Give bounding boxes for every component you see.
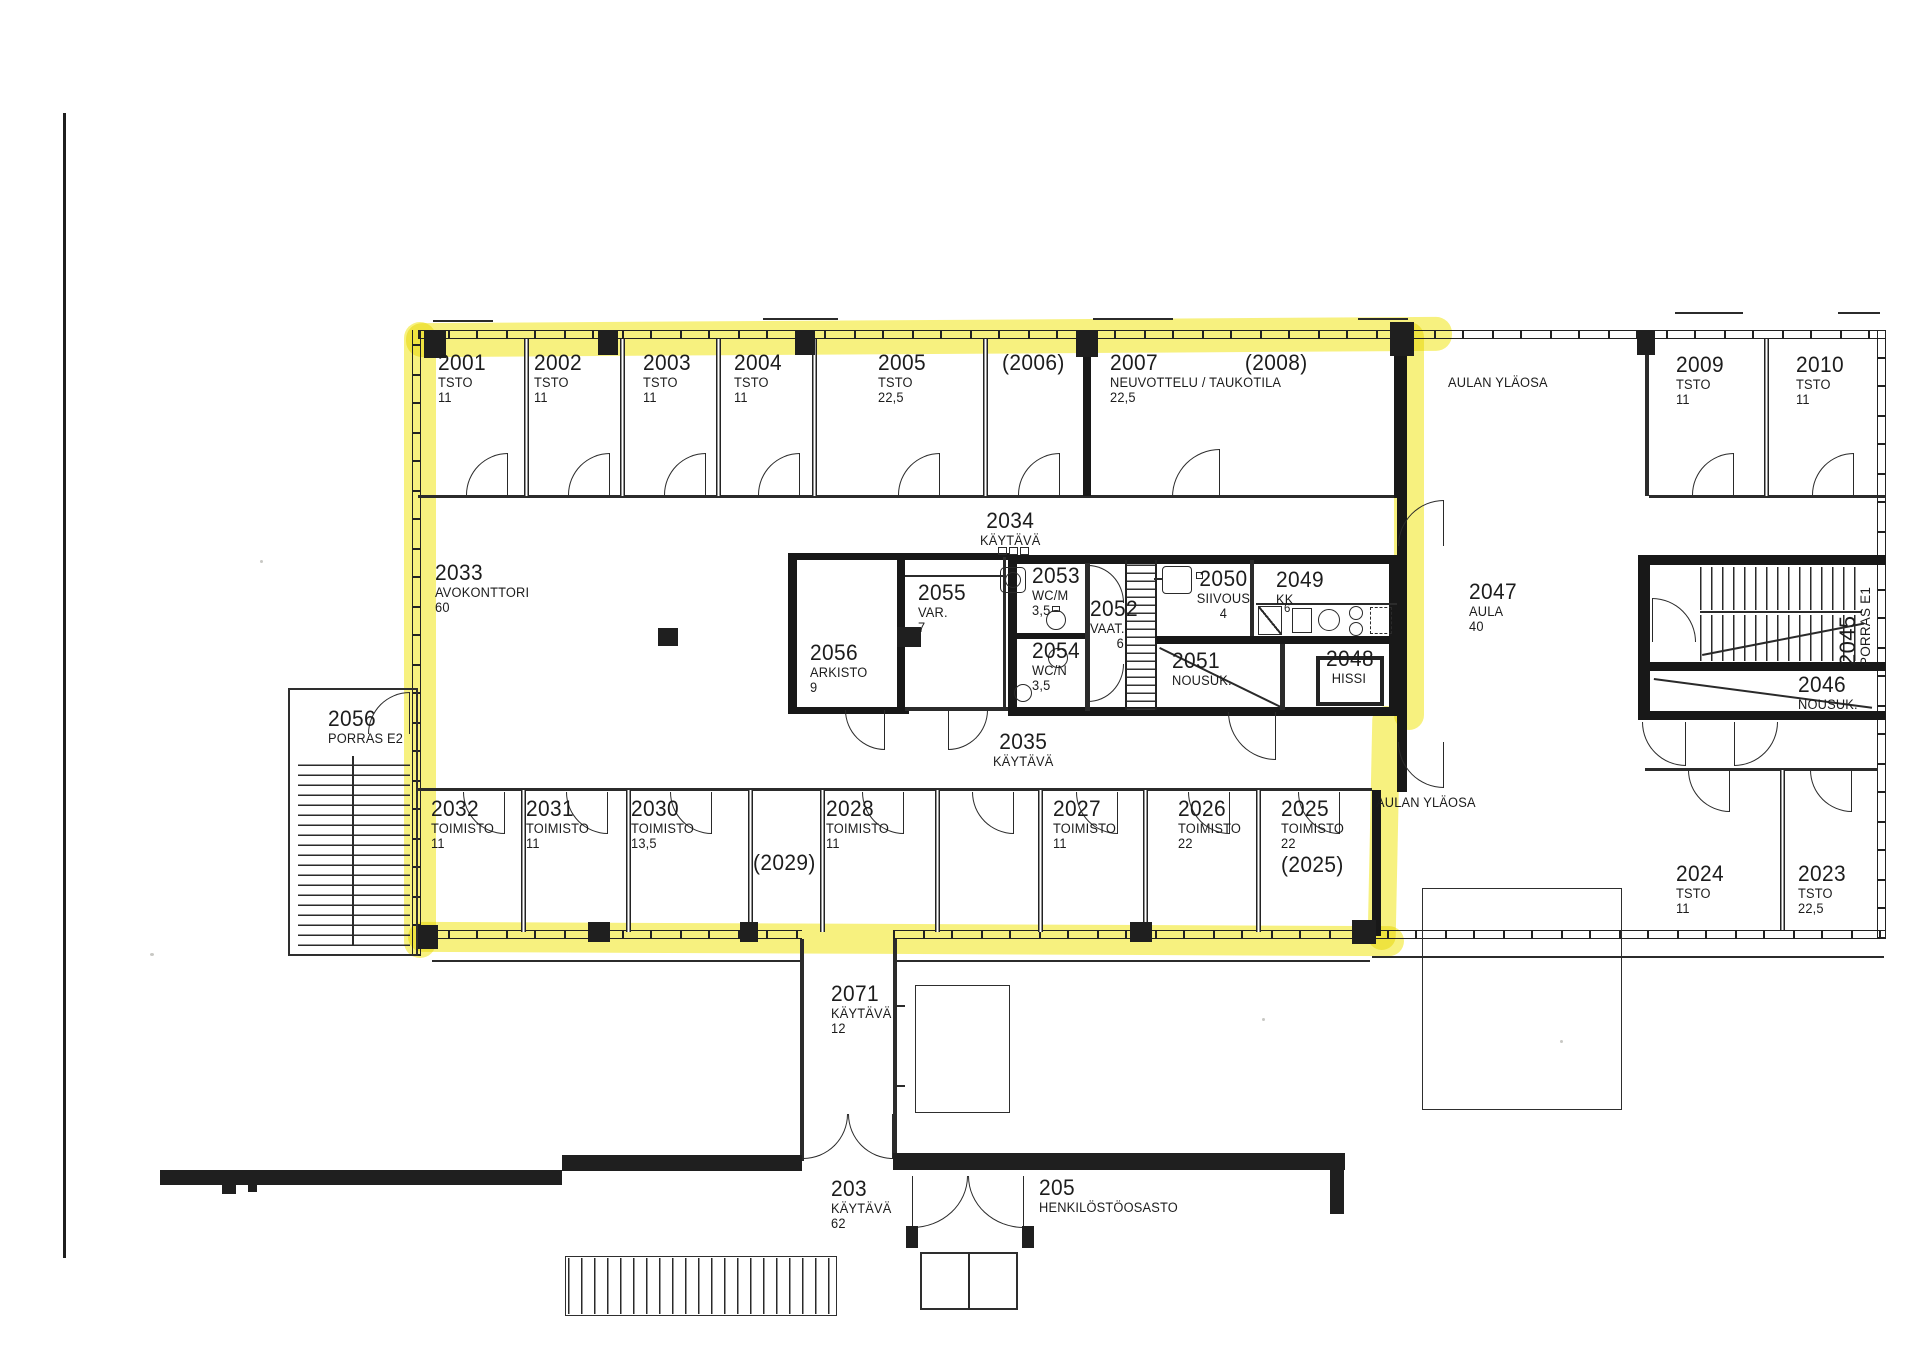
sill-tick bbox=[1358, 318, 1408, 320]
window-wall-top bbox=[418, 330, 1886, 339]
door-2009 bbox=[1692, 453, 1734, 495]
room-label-2045: 2045 PORRAS E1 bbox=[1836, 587, 1873, 666]
column bbox=[658, 628, 678, 646]
highlight-bottom bbox=[408, 922, 1404, 956]
kitchen-sink-icon bbox=[1318, 609, 1340, 631]
wall bbox=[812, 339, 817, 496]
room-label-2029: (2029) bbox=[753, 850, 816, 875]
room-label-2052: 2052 VAAT. 6 bbox=[1090, 596, 1138, 652]
room-label-2003: 2003 TSTO 11 bbox=[643, 350, 691, 406]
window-wall-right bbox=[1877, 330, 1886, 939]
stair-treads-e2 bbox=[298, 756, 410, 946]
door-2046-right bbox=[1734, 722, 1778, 766]
fridge-icon bbox=[1370, 607, 1392, 634]
room-label-2048: 2048 HISSI bbox=[1326, 646, 1374, 686]
wall-thick bbox=[1155, 636, 1399, 644]
sill-tick bbox=[1093, 318, 1173, 320]
wall bbox=[935, 790, 940, 932]
door-wc-n bbox=[1088, 664, 1124, 702]
room-label-2047: 2047 AULA 40 bbox=[1469, 579, 1517, 635]
column bbox=[1352, 920, 1376, 944]
stove-ring-icon bbox=[1349, 606, 1363, 620]
swing-door-right bbox=[848, 1114, 893, 1159]
lobby-void-opening bbox=[1422, 888, 1622, 1110]
wall-lower-mid bbox=[562, 1155, 802, 1171]
room-label-2053: 2053 WC/M 3,5 bbox=[1032, 563, 1080, 619]
stove-ring-icon bbox=[1349, 622, 1363, 636]
wall bbox=[983, 339, 988, 496]
scan-speckle bbox=[260, 560, 263, 563]
room-label-2025: 2025 TOIMISTO 22 (2025) bbox=[1281, 796, 1344, 877]
wall bbox=[620, 339, 625, 496]
window-tick bbox=[897, 1085, 905, 1087]
column bbox=[1637, 330, 1655, 355]
lower-stair-treads bbox=[568, 1258, 834, 1314]
column bbox=[1076, 330, 1098, 357]
room-label-2006: (2006) bbox=[1002, 350, 1065, 375]
wall bbox=[820, 790, 825, 932]
room-label-2005: 2005 TSTO 22,5 bbox=[878, 350, 926, 406]
sill-tick bbox=[433, 320, 493, 322]
room-label-2004: 2004 TSTO 11 bbox=[734, 350, 782, 406]
wall-thick bbox=[788, 553, 797, 714]
room-label-2054: 2054 WC/N 3,5 bbox=[1032, 638, 1080, 694]
tap-icon bbox=[1154, 578, 1162, 580]
sill-tick bbox=[1838, 312, 1880, 314]
wall-lower-right bbox=[893, 1153, 1345, 1170]
room-label-2002: 2002 TSTO 11 bbox=[534, 350, 582, 406]
wall bbox=[1143, 790, 1148, 932]
column bbox=[740, 922, 758, 942]
sink-icon bbox=[1162, 566, 1192, 594]
toilet-icon bbox=[1014, 684, 1032, 702]
label-aulan-ylaosa-bottom: AULAN YLÄOSA bbox=[1376, 795, 1476, 810]
kitchen-unit-icon bbox=[1258, 606, 1282, 635]
kitchen-unit-icon bbox=[1292, 608, 1312, 633]
wall bbox=[1764, 339, 1769, 496]
corridor-2071-wall-right bbox=[893, 939, 897, 1161]
room-label-2030: 2030 TOIMISTO 13,5 bbox=[631, 796, 694, 852]
vestibule-door-right bbox=[968, 1176, 1024, 1228]
door-2023 bbox=[1810, 770, 1852, 812]
door-2003 bbox=[664, 453, 706, 495]
room-label-2056-arkisto: 2056 ARKISTO 9 bbox=[810, 640, 867, 696]
wall bbox=[1280, 644, 1285, 710]
wall-thick bbox=[1372, 790, 1381, 936]
board-rectangle bbox=[915, 985, 1010, 1113]
room-label-2071: 2071 KÄYTÄVÄ 12 bbox=[831, 981, 892, 1037]
wall-stub bbox=[222, 1185, 236, 1194]
door-var bbox=[948, 710, 988, 750]
corridor-wall-top-band bbox=[418, 495, 1400, 498]
room-label-2031: 2031 TOIMISTO 11 bbox=[526, 796, 589, 852]
room-label-205: 205 HENKILÖSTÖOSASTO bbox=[1039, 1175, 1178, 1215]
sill-tick bbox=[763, 318, 838, 320]
room-label-2055: 2055 VAR. 7 bbox=[918, 580, 966, 636]
column bbox=[795, 330, 815, 355]
room-label-2034: 2034 KÄYTÄVÄ bbox=[980, 508, 1041, 548]
terrace-line bbox=[897, 960, 1370, 962]
door-2007 bbox=[1172, 449, 1220, 497]
column bbox=[588, 922, 610, 942]
wall-stub bbox=[906, 1226, 918, 1248]
column bbox=[598, 330, 618, 355]
scan-edge-line bbox=[63, 113, 66, 1258]
room-label-2046: 2046 NOUSUK. bbox=[1798, 672, 1858, 712]
wall-thick bbox=[1638, 555, 1650, 720]
door-nousuk bbox=[1228, 712, 1276, 760]
corridor-wall-bottom-band bbox=[418, 788, 1372, 791]
door-2046-left bbox=[1642, 722, 1686, 766]
room-label-2056-porras: 2056 PORRAS E2 bbox=[328, 706, 403, 746]
column bbox=[1390, 322, 1414, 356]
vestibule-door-left bbox=[912, 1176, 968, 1228]
terrace-line bbox=[432, 960, 800, 962]
room-label-2035: 2035 KÄYTÄVÄ bbox=[993, 729, 1054, 769]
stair-rail-e2 bbox=[352, 756, 354, 946]
wall bbox=[524, 339, 529, 496]
room-label-2032: 2032 TOIMISTO 11 bbox=[431, 796, 494, 852]
wall bbox=[1038, 790, 1043, 932]
door-stair-e1 bbox=[1652, 598, 1696, 642]
wall-thick bbox=[1638, 555, 1886, 565]
scan-speckle bbox=[1262, 1018, 1265, 1021]
room-label-2027: 2027 TOIMISTO 11 bbox=[1053, 796, 1116, 852]
floor-plan-page: 2001 TSTO 11 2002 TSTO 11 2003 TSTO 11 2… bbox=[0, 0, 1920, 1358]
door-2010 bbox=[1812, 453, 1854, 495]
room-label-2007-2008: 2007 (2008) NEUVOTTELU / TAUKOTILA 22,5 bbox=[1110, 350, 1308, 406]
door-2006 bbox=[1018, 453, 1060, 495]
wall-thick bbox=[1083, 335, 1091, 496]
room-label-2023: 2023 TSTO 22,5 bbox=[1798, 861, 1846, 917]
wall-stub bbox=[1022, 1226, 1034, 1248]
room-label-2028: 2028 TOIMISTO 11 bbox=[826, 796, 889, 852]
room-label-2010: 2010 TSTO 11 bbox=[1796, 352, 1844, 408]
door-2001 bbox=[466, 453, 508, 495]
room-label-2051: 2051 NOUSUK. bbox=[1172, 648, 1232, 688]
door-2002 bbox=[568, 453, 610, 495]
room-label-2050: 2050 SIIVOUS 4 bbox=[1194, 566, 1253, 622]
scan-speckle bbox=[1560, 1040, 1563, 1043]
door-room bbox=[972, 792, 1014, 834]
swing-door-left bbox=[803, 1114, 848, 1159]
wall-stub bbox=[1330, 1170, 1344, 1214]
wall-thick bbox=[1008, 707, 1399, 716]
door-arkisto bbox=[845, 710, 885, 750]
wall-stub bbox=[248, 1185, 257, 1192]
room-label-2024: 2024 TSTO 11 bbox=[1676, 861, 1724, 917]
wall bbox=[716, 339, 721, 496]
room-label-2001: 2001 TSTO 11 bbox=[438, 350, 486, 406]
label-aulan-ylaosa-top: AULAN YLÄOSA bbox=[1448, 375, 1548, 390]
column bbox=[1130, 922, 1152, 942]
wall bbox=[1780, 770, 1785, 930]
door-2024 bbox=[1688, 770, 1730, 812]
wall-lower-left bbox=[160, 1170, 562, 1185]
vestibule-mat-divider bbox=[968, 1252, 970, 1310]
wall bbox=[1256, 790, 1261, 932]
kk-detail-label: 6 bbox=[1284, 602, 1290, 616]
shelf-line-2055 bbox=[905, 575, 1005, 577]
room-label-2026: 2026 TOIMISTO 22 bbox=[1178, 796, 1241, 852]
window-tick bbox=[897, 1005, 905, 1007]
room-label-2033: 2033 AVOKONTTORI 60 bbox=[435, 560, 529, 616]
sill-tick bbox=[1675, 312, 1743, 314]
door-2004 bbox=[758, 453, 800, 495]
scan-speckle bbox=[150, 953, 154, 956]
washbasin-bowl-icon bbox=[1005, 572, 1021, 588]
wall bbox=[1645, 339, 1649, 496]
door-2005 bbox=[898, 453, 940, 495]
room-label-203: 203 KÄYTÄVÄ 62 bbox=[831, 1176, 892, 1232]
room-label-2009: 2009 TSTO 11 bbox=[1676, 352, 1724, 408]
column bbox=[418, 925, 438, 949]
